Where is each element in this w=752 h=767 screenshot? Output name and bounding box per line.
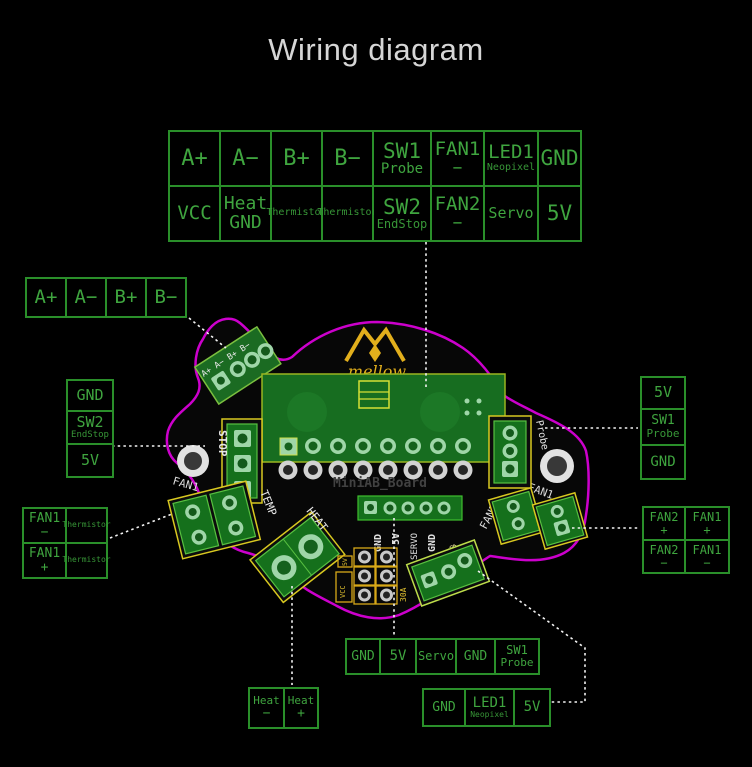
cell-label: Thermistor	[317, 208, 377, 219]
cell-label: Servo	[488, 206, 533, 222]
label-cell: GND	[68, 381, 112, 410]
label-cell: LED1Neopixel	[466, 690, 513, 725]
cell-sublabel: Neopixel	[470, 711, 509, 719]
cell-a-plus: A+	[170, 132, 219, 185]
cell-label: GND	[432, 701, 455, 715]
connection-line-fan1-left	[110, 514, 172, 538]
label-cell: GND	[347, 640, 379, 673]
cell-a-minus: A−	[221, 132, 270, 185]
right-fan-table: FAN2+ FAN1+ FAN2− FAN1−	[642, 506, 730, 574]
cell-heat-gnd: HeatGND	[221, 187, 270, 240]
label-cell: FAN1+	[24, 544, 65, 577]
cell-sublabel: Probe	[381, 162, 423, 177]
pin-servo-silk: SERVO	[410, 533, 420, 560]
cell-label: FAN1	[693, 544, 722, 557]
label-cell: FAN2+	[644, 508, 684, 539]
cell-label: GND	[76, 388, 103, 404]
cell-led1: LED1Neopixel	[485, 132, 537, 185]
label-cell: 5V	[515, 690, 549, 725]
connection-line-led	[478, 571, 585, 702]
cell-label: B−	[334, 147, 361, 170]
label-cell: 5V	[642, 378, 684, 408]
label-cell: FAN1+	[686, 508, 728, 539]
label-cell: A+	[27, 279, 65, 316]
cell-label: Servo	[418, 650, 454, 663]
mounting-hole-right	[540, 449, 574, 483]
cell-sublabel: +	[660, 524, 667, 537]
wiring-diagram-page: Wiring diagram mellow A+ A− B+ B−	[0, 0, 752, 767]
label-cell: GND	[424, 690, 464, 725]
cell-label: GND	[464, 650, 487, 664]
cell-label: Heat	[224, 195, 267, 214]
pcb-module	[262, 374, 505, 462]
cell-sublabel: −	[703, 557, 710, 570]
cell-sublabel: −	[453, 215, 463, 232]
cell-sublabel: +	[703, 524, 710, 537]
cell-fan1-minus: FAN1−	[432, 132, 483, 185]
cell-label: LED1	[488, 143, 534, 163]
cell-label: GND	[541, 147, 579, 169]
bottom-led-table: GND LED1Neopixel 5V	[422, 688, 551, 727]
label-cell: Thermistor	[67, 544, 106, 577]
label-cell: 5V	[381, 640, 415, 673]
cell-label: GND	[351, 650, 374, 664]
cell-5v: 5V	[539, 187, 580, 240]
label-cell: GND	[457, 640, 494, 673]
cell-label: A−	[75, 288, 98, 308]
cell-label: B+	[115, 288, 138, 308]
silk-5v-tiny: 5V	[341, 558, 349, 566]
cell-label: FAN1	[693, 511, 722, 524]
cell-label: GND	[650, 455, 675, 470]
label-cell: B+	[107, 279, 145, 316]
cell-sublabel: −	[453, 160, 463, 177]
cell-label: SW1	[651, 414, 674, 428]
cell-label: B+	[283, 147, 310, 170]
mounting-hole-left	[177, 445, 209, 477]
cell-label: FAN1	[29, 512, 60, 526]
cell-vcc: VCC	[170, 187, 219, 240]
cell-label: A−	[232, 147, 259, 170]
cell-thermistor-1: Thermistor	[272, 187, 321, 240]
cell-label: FAN2	[650, 544, 679, 557]
cell-sw2-endstop: SW2EndStop	[374, 187, 430, 240]
pin-gnd2-silk: GND	[427, 534, 438, 552]
cell-label: A+	[181, 147, 208, 170]
label-cell: B−	[147, 279, 185, 316]
left-ab-table: A+ A− B+ B−	[25, 277, 187, 318]
cell-sublabel: Probe	[646, 428, 679, 440]
label-cell: 5V	[68, 445, 112, 476]
label-cell: A−	[67, 279, 105, 316]
label-cell: Servo	[417, 640, 455, 673]
cell-sublabel: Neopixel	[487, 163, 535, 174]
label-cell: Heat+	[285, 689, 317, 727]
cell-label: SW1	[383, 140, 421, 162]
cell-thermistor-2: Thermistor	[323, 187, 372, 240]
cell-sublabel: EndStop	[377, 218, 428, 231]
cell-label: 5V	[654, 385, 672, 401]
cell-sublabel: −	[263, 707, 271, 721]
label-cell: SW1Probe	[642, 410, 684, 444]
left-endstop-stack: GND SW2EndStop 5V	[66, 379, 114, 478]
left-fan-table: FAN1− Thermistor FAN1+ Thermistor	[22, 507, 108, 579]
cell-sublabel: GND	[229, 214, 262, 233]
label-cell: FAN2−	[644, 541, 684, 572]
label-cell: FAN1−	[686, 541, 728, 572]
servo-header	[358, 496, 462, 520]
cell-label: FAN2	[435, 195, 481, 215]
cell-label: SW2	[76, 415, 103, 431]
cell-sublabel: −	[41, 526, 49, 540]
heat-table: Heat− Heat+	[248, 687, 319, 729]
cell-label: FAN1	[29, 547, 60, 561]
stop-silk: STOP	[216, 430, 229, 457]
cell-b-plus: B+	[272, 132, 321, 185]
cell-label: 5V	[81, 453, 99, 469]
label-cell: SW2EndStop	[68, 412, 112, 443]
label-cell: SW1Probe	[496, 640, 538, 673]
cell-fan2-minus: FAN2−	[432, 187, 483, 240]
cell-label: Thermistor	[62, 556, 110, 564]
cell-label: LED1	[473, 696, 507, 711]
probe-connector	[489, 416, 531, 488]
pin-5v-silk: 5V	[391, 533, 402, 545]
cell-sublabel: EndStop	[71, 431, 109, 440]
cell-label: A+	[35, 288, 58, 308]
bottom-servo-table: GND 5V Servo GND SW1Probe	[345, 638, 540, 675]
cell-label: 5V	[547, 202, 572, 224]
cell-label: B−	[155, 288, 178, 308]
cell-label: VCC	[177, 204, 211, 224]
label-cell: Thermistor	[67, 509, 106, 542]
right-probe-stack: 5V SW1Probe GND	[640, 376, 686, 480]
board-name: MiniAB_Board	[333, 476, 427, 491]
cell-servo: Servo	[485, 187, 537, 240]
cell-label: FAN2	[650, 511, 679, 524]
cell-label: 5V	[390, 649, 407, 664]
cell-label: Thermistor	[62, 521, 110, 529]
cell-sublabel: +	[297, 707, 305, 721]
cell-sw1-probe: SW1Probe	[374, 132, 430, 185]
cell-sublabel: −	[660, 557, 667, 570]
cell-label: FAN1	[435, 140, 481, 160]
cell-sublabel: +	[41, 561, 49, 575]
silk-fuse-rating: 30A	[399, 587, 408, 602]
cell-sublabel: Probe	[500, 657, 533, 669]
top-table: A+ A− B+ B− SW1Probe FAN1− LED1Neopixel …	[168, 130, 582, 242]
label-cell: GND	[642, 446, 684, 478]
label-cell: FAN1−	[24, 509, 65, 542]
cell-gnd: GND	[539, 132, 580, 185]
cell-b-minus: B−	[323, 132, 372, 185]
label-cell: Heat−	[250, 689, 283, 727]
cell-label: 5V	[524, 700, 541, 715]
cell-label: SW2	[383, 196, 421, 218]
silk-vcc-tiny: VCC	[339, 585, 347, 598]
